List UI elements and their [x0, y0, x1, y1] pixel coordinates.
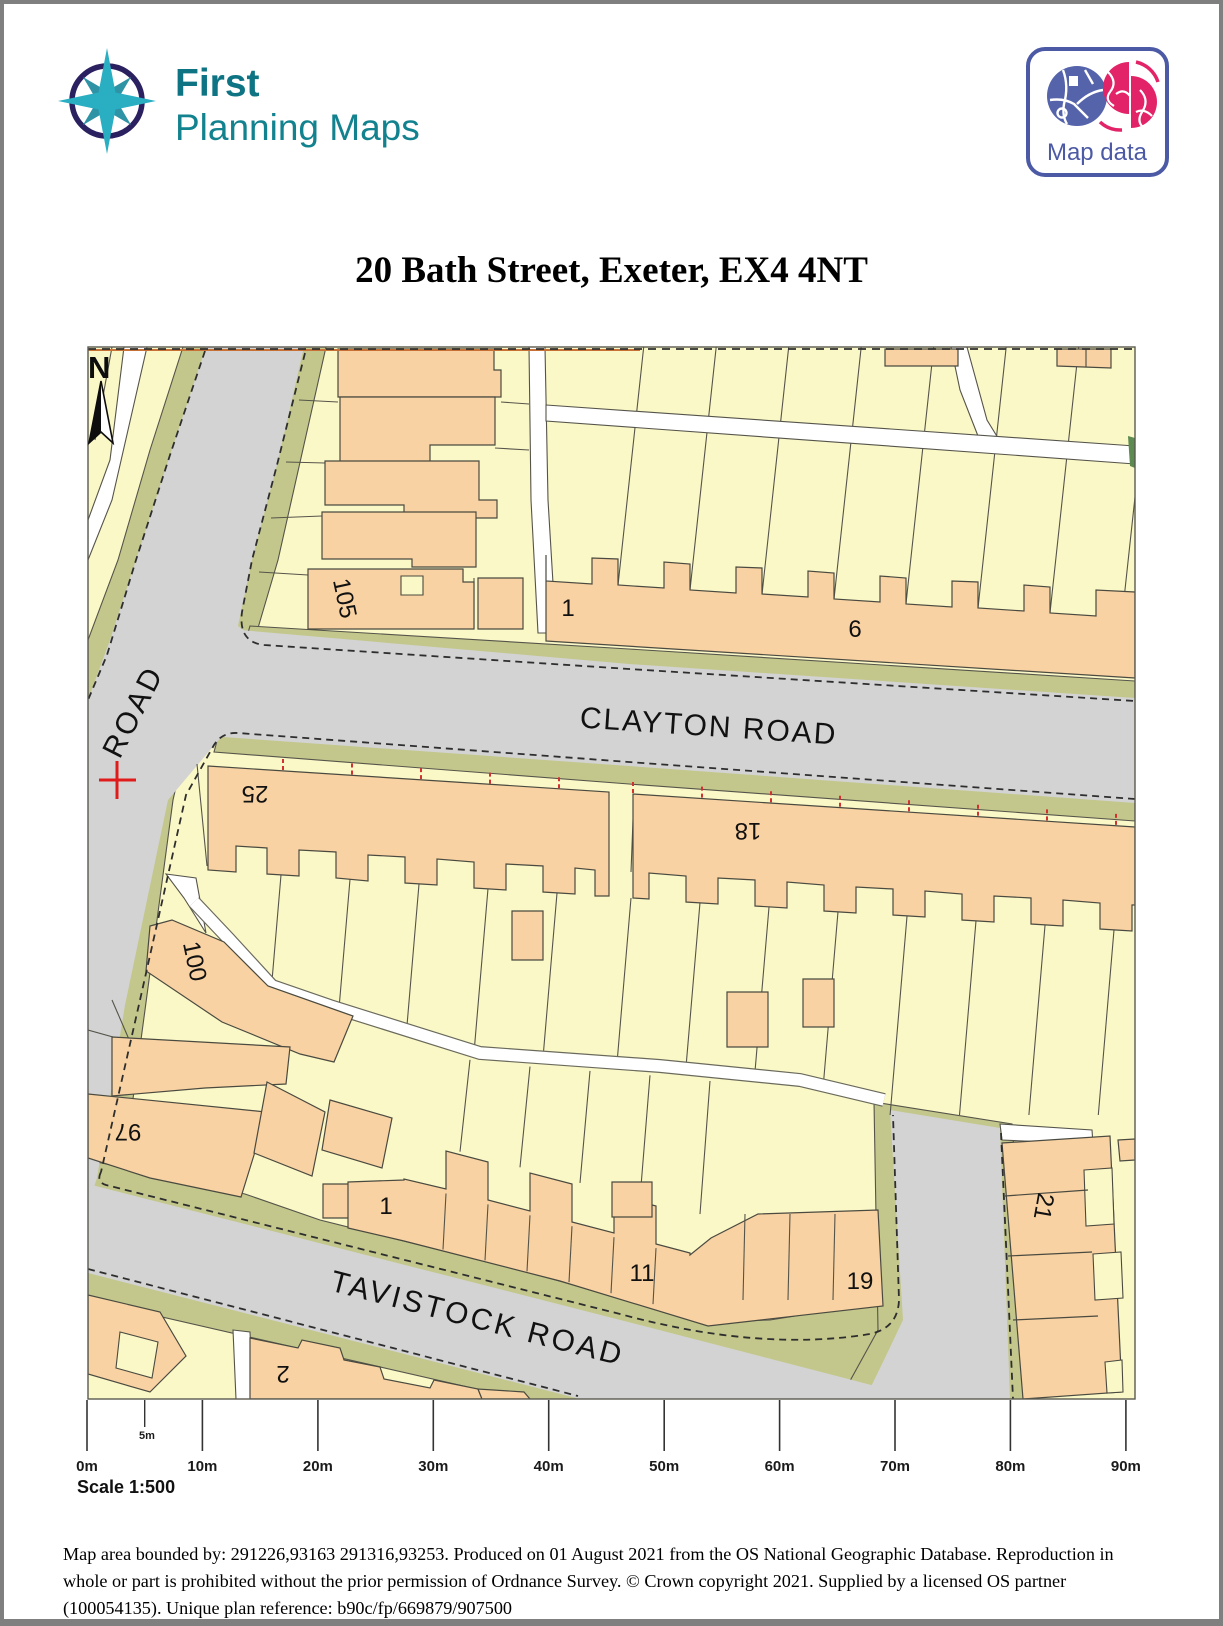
svg-text:10m: 10m: [187, 1458, 217, 1475]
svg-text:21: 21: [1028, 1191, 1059, 1222]
svg-text:30m: 30m: [418, 1458, 448, 1475]
svg-text:60m: 60m: [765, 1458, 795, 1475]
svg-text:Scale 1:500: Scale 1:500: [77, 1477, 175, 1497]
svg-text:1: 1: [379, 1193, 392, 1220]
svg-text:20m: 20m: [303, 1458, 333, 1475]
svg-text:70m: 70m: [880, 1458, 910, 1475]
svg-text:19: 19: [847, 1268, 874, 1295]
svg-text:90m: 90m: [1111, 1458, 1141, 1475]
svg-text:97: 97: [115, 1118, 142, 1145]
svg-text:1: 1: [561, 595, 574, 622]
svg-text:25: 25: [242, 780, 269, 807]
svg-text:N: N: [88, 350, 110, 385]
svg-text:18: 18: [735, 817, 762, 844]
svg-text:6: 6: [848, 616, 861, 643]
svg-text:2: 2: [276, 1360, 289, 1387]
svg-text:5m: 5m: [139, 1430, 155, 1442]
svg-text:40m: 40m: [534, 1458, 564, 1475]
svg-text:50m: 50m: [649, 1458, 679, 1475]
svg-text:11: 11: [630, 1260, 655, 1287]
svg-text:80m: 80m: [995, 1458, 1025, 1475]
svg-text:0m: 0m: [76, 1458, 98, 1475]
